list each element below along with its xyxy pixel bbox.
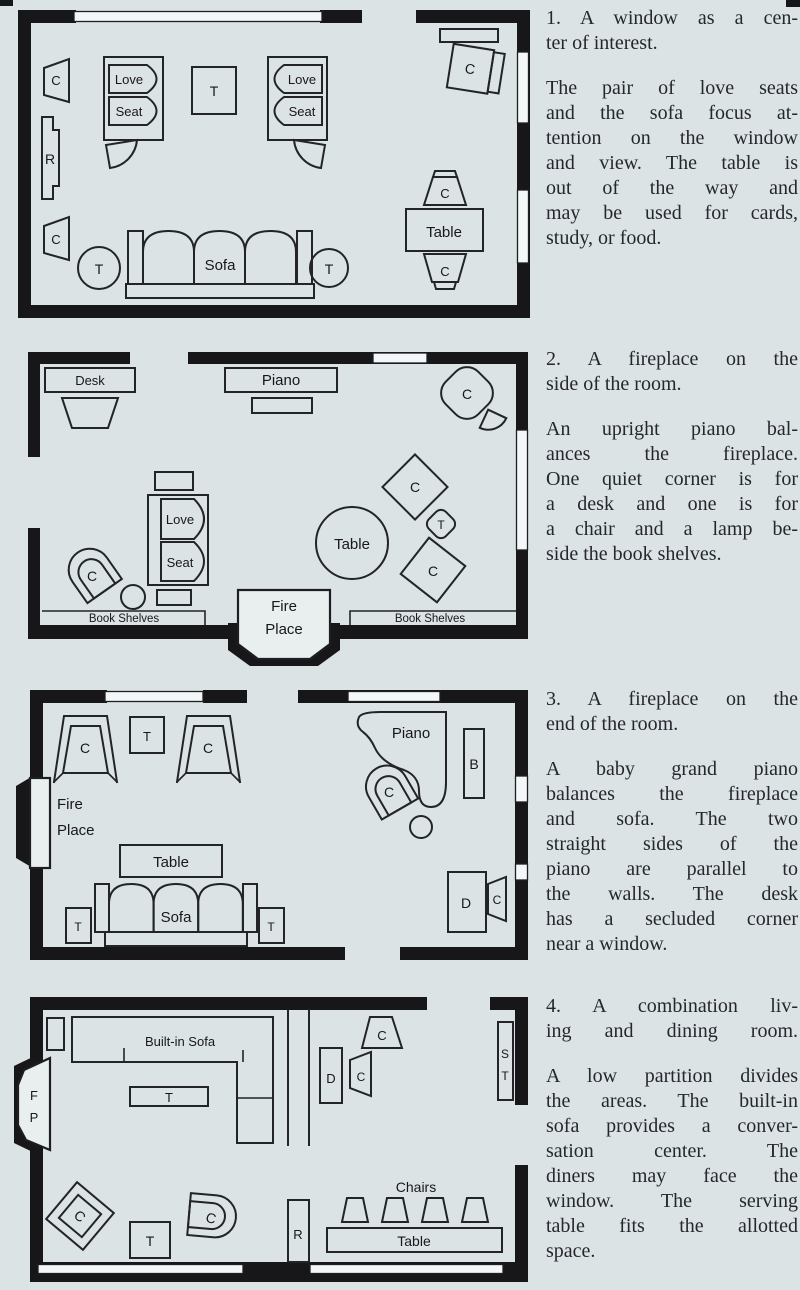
sofa: Sofa [95, 884, 257, 946]
loveseat-label: Seat [289, 104, 316, 119]
bookshelves-label: Book Shelves [89, 613, 160, 625]
table-label: T [146, 1233, 155, 1249]
bookshelves-left: Book Shelves [42, 611, 205, 625]
chair-label: C [440, 264, 449, 279]
body-line: out of the way and [546, 176, 798, 201]
body-line: the walls. The desk [546, 882, 798, 907]
chair-label: C [71, 1207, 89, 1226]
body-line: A baby grand piano [546, 757, 798, 782]
window [516, 776, 528, 802]
walls [30, 690, 528, 960]
window [105, 692, 203, 702]
bookcase: B [464, 729, 484, 798]
desk-group: D C [448, 872, 506, 932]
chair-label: C [51, 232, 60, 247]
desk-label: D [326, 1071, 335, 1086]
fireplace: Fire Place [228, 590, 340, 666]
body-line: An upright piano bal- [546, 417, 798, 442]
end-table-left: T [66, 908, 91, 943]
heading-line: 4. A combination liv- [546, 994, 798, 1019]
chair-tub: C [358, 758, 418, 820]
loveseat-label: Love [166, 512, 194, 527]
piano-stool [410, 816, 432, 838]
heading-line: end of the room. [546, 712, 798, 737]
radio: R [288, 1200, 309, 1262]
sofa-label: Sofa [205, 257, 237, 274]
end-table-right: T [259, 908, 284, 943]
walls [30, 997, 528, 1282]
body-line: diners may face the [546, 1164, 798, 1189]
ottoman [480, 410, 507, 437]
round-table-left: T [78, 247, 120, 289]
body-line: the areas. The built-in [546, 1089, 798, 1114]
table-label: T [165, 1090, 173, 1105]
radio-label: R [293, 1227, 302, 1242]
body-line: straight sides of the [546, 832, 798, 857]
table-label: Table [426, 224, 462, 241]
loveseat-label: Seat [116, 104, 143, 119]
loveseat-label: Love [115, 72, 143, 87]
body-line: may be used for cards, [546, 201, 798, 226]
table-square-top: T [192, 67, 236, 114]
fireplace-label: Place [57, 822, 95, 839]
dining-chair [342, 1198, 368, 1222]
body-line: a chair and a lamp be- [546, 517, 798, 542]
section-4-heading: 4. A combination liv- ing and dining roo… [546, 994, 798, 1044]
armchair-1: C [54, 716, 117, 782]
section-4: 4. A combination liv- ing and dining roo… [546, 994, 798, 1264]
section-1: 1. A window as a cen- ter of interest. T… [546, 6, 798, 251]
desk-label: Desk [75, 373, 105, 388]
body-line: table fits the allotted [546, 1214, 798, 1239]
table-square: T [130, 717, 164, 753]
grand-piano: Piano [358, 712, 446, 807]
table-label: T [210, 83, 219, 99]
chairs-label: Chairs [396, 1179, 436, 1195]
partition [288, 1010, 309, 1145]
built-in-sofa: Built-in Sofa [72, 1017, 273, 1143]
heading-line: ter of interest. [546, 31, 798, 56]
body-line: and view. The table is [546, 151, 798, 176]
body-line: The pair of love seats [546, 76, 798, 101]
body-line: side the book shelves. [546, 542, 798, 567]
radio: R [42, 117, 59, 199]
coffee-table: T [130, 1087, 208, 1106]
chair-label: C [464, 60, 477, 77]
dining-chair [382, 1198, 408, 1222]
book-page: C R C Love Seat T Love Seat [0, 0, 800, 1290]
heading-line: ing and dining room. [546, 1019, 798, 1044]
chair-tub: C [187, 1193, 237, 1239]
section-3-body: A baby grand piano balances the fireplac… [546, 757, 798, 957]
floor-plan-4: F P Built-in Sofa T C T C [0, 985, 540, 1285]
heading-line: 2. A fireplace on the [546, 347, 798, 372]
lamp [121, 585, 145, 609]
table-label: Table [153, 854, 189, 871]
body-line: piano are parallel to [546, 857, 798, 882]
floor-plan-1: C R C Love Seat T Love Seat [0, 0, 540, 335]
body-line: a desk and one is for [546, 492, 798, 517]
dining-chair [462, 1198, 488, 1222]
sofa-label: Sofa [161, 909, 193, 926]
section-1-heading: 1. A window as a cen- ter of interest. [546, 6, 798, 56]
chair-diamond: C [46, 1182, 114, 1250]
window [373, 353, 427, 363]
desk-area: C D C [320, 1017, 402, 1103]
chair-label: C [493, 893, 502, 907]
fireplace-label: Fire [57, 796, 83, 813]
body-line: space. [546, 1239, 798, 1264]
chair-tilted: C [447, 44, 505, 96]
table-label: T [95, 261, 104, 277]
window [74, 12, 322, 22]
body-line: sofa provides a conver- [546, 1114, 798, 1139]
body-line: and the sofa focus at- [546, 101, 798, 126]
body-line: sation center. The [546, 1139, 798, 1164]
loveseat-label: Seat [167, 555, 194, 570]
table-label: T [325, 261, 334, 277]
desk-label: D [461, 895, 471, 911]
window [38, 1265, 243, 1274]
end-table [155, 472, 193, 490]
chair-label: C [440, 186, 449, 201]
chair-diamond-2: C [401, 538, 466, 603]
end-table [47, 1018, 64, 1050]
piano-group: Piano [225, 368, 337, 413]
loveseat-label: Love [288, 72, 316, 87]
floor-plan-3: Fire Place C T C Table [0, 680, 540, 970]
side-table-small: T [424, 507, 458, 541]
desk-group: Desk [45, 368, 135, 428]
window [516, 864, 528, 880]
chair-label: C [204, 1209, 218, 1227]
body-line: window. The serving [546, 1189, 798, 1214]
loveseat-right: Love Seat [268, 57, 327, 140]
serving-table: S T [498, 1022, 513, 1100]
side-table: T [130, 1222, 170, 1258]
floor-plan-2: Desk Piano C Love Seat [0, 340, 540, 670]
fireplace: F P [14, 1052, 50, 1157]
table-label: T [267, 920, 275, 934]
heading-line: 1. A window as a cen- [546, 6, 798, 31]
heading-line: side of the room. [546, 372, 798, 397]
chair-left-bottom: C [44, 217, 69, 260]
section-1-body: The pair of love seats and the sofa focu… [546, 76, 798, 251]
serving-table-label: S [501, 1047, 509, 1061]
sofa: Sofa [126, 231, 314, 298]
fireplace-label: Fire [271, 598, 297, 615]
chair-label: C [80, 740, 90, 756]
body-line: has a secluded corner [546, 907, 798, 932]
table-label: T [437, 518, 445, 532]
round-table: Table [316, 507, 388, 579]
body-line: balances the fireplace [546, 782, 798, 807]
body-line: study, or food. [546, 226, 798, 251]
window [310, 1265, 503, 1274]
window-seat [440, 29, 498, 42]
fireplace: Fire Place [16, 770, 95, 874]
table-label: Table [334, 536, 370, 553]
armchair-2: C [177, 716, 240, 782]
loveseat-left: Love Seat [104, 57, 163, 140]
table-label: T [143, 729, 151, 744]
bookshelves-right: Book Shelves [350, 611, 516, 625]
text-column: 1. A window as a cen- ter of interest. T… [546, 0, 798, 1290]
heading-line: 3. A fireplace on the [546, 687, 798, 712]
end-table [157, 590, 191, 605]
serving-table-label: T [501, 1069, 509, 1083]
section-3-heading: 3. A fireplace on the end of the room. [546, 687, 798, 737]
chair-tub: C [60, 540, 121, 603]
card-table-group: C Table C [406, 171, 483, 289]
table-label: T [74, 920, 82, 934]
dining-chair [422, 1198, 448, 1222]
piano-label: Piano [392, 725, 430, 742]
chair-label: C [410, 479, 420, 495]
section-4-body: A low partition divides the areas. The b… [546, 1064, 798, 1264]
body-line: tention on the window [546, 126, 798, 151]
chair-label: C [51, 73, 60, 88]
chair-label: C [357, 1070, 366, 1084]
body-line: A low partition divides [546, 1064, 798, 1089]
section-2: 2. A fireplace on the side of the room. … [546, 347, 798, 567]
bookcase-label: B [469, 756, 478, 772]
body-line: ances the fireplace. [546, 442, 798, 467]
chair-label: C [377, 1028, 386, 1043]
piano-label: Piano [262, 372, 300, 389]
chair-label: C [384, 784, 394, 800]
corner-table [294, 140, 325, 168]
fireplace-label: F [30, 1088, 38, 1103]
window [518, 52, 529, 123]
dining-set: Chairs Table [327, 1179, 502, 1252]
round-table-right: T [310, 249, 348, 287]
corner-table [106, 140, 137, 168]
chair-left-top: C [44, 59, 69, 102]
window [517, 430, 528, 550]
chair-corner: C [434, 360, 506, 436]
window [518, 190, 529, 263]
body-line: One quiet corner is for [546, 467, 798, 492]
fireplace-label: P [30, 1110, 39, 1125]
table-label: Table [397, 1233, 431, 1249]
radio-label: R [45, 151, 55, 167]
body-line: near a window. [546, 932, 798, 957]
built-in-sofa-label: Built-in Sofa [145, 1034, 216, 1049]
body-line: and sofa. The two [546, 807, 798, 832]
chair-label: C [203, 740, 213, 756]
loveseat: Love Seat [148, 472, 208, 605]
bookshelves-label: Book Shelves [395, 613, 466, 625]
window [348, 692, 440, 702]
chair-label: C [462, 386, 472, 402]
chair-label: C [87, 568, 97, 584]
fireplace-label: Place [265, 621, 303, 638]
section-3: 3. A fireplace on the end of the room. A… [546, 687, 798, 957]
section-2-heading: 2. A fireplace on the side of the room. [546, 347, 798, 397]
chair-label: C [428, 563, 438, 579]
coffee-table: Table [120, 845, 222, 877]
section-2-body: An upright piano bal- ances the fireplac… [546, 417, 798, 567]
